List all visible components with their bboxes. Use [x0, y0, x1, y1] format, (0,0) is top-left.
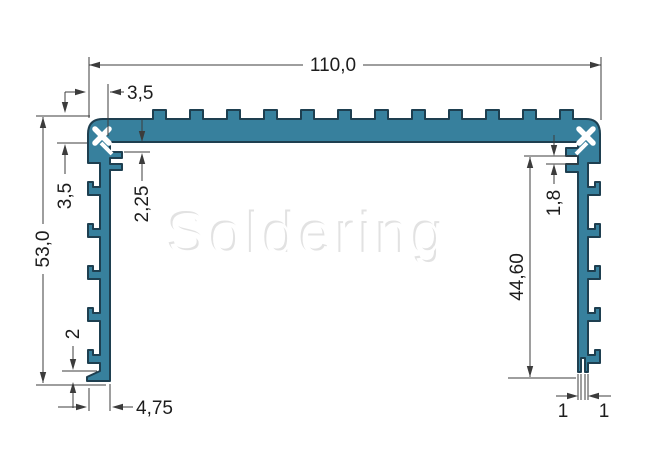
arrow [40, 117, 46, 128]
arrow [112, 404, 123, 410]
dim-left-flange: 3,5 [55, 143, 87, 209]
dim-label-right-slot: 1,8 [544, 190, 565, 216]
arrow [567, 393, 578, 399]
arrow [527, 157, 533, 168]
arrow [62, 102, 68, 113]
arrow [588, 393, 599, 399]
watermark-text: Soldering [168, 202, 449, 267]
dim-inner-depth: 44,60 [507, 156, 578, 378]
arrow [110, 89, 121, 95]
dim-label-inner-depth: 44,60 [507, 253, 528, 301]
dim-foot-height: 2 [62, 329, 97, 408]
dim-label-foot-height: 2 [63, 329, 84, 340]
arrow [70, 382, 76, 393]
dim-label-left-flange: 3,5 [55, 183, 76, 209]
arrow [75, 89, 86, 95]
dim-label-overall-width: 110,0 [310, 55, 356, 76]
dim-jog-leader [62, 89, 86, 113]
profile-drawing-canvas: Soldering Soldering 110,0 3,5 [0, 0, 646, 467]
dim-bottom-legs: 1 1 [556, 374, 611, 422]
dim-label-right-leg: 1 [599, 401, 610, 422]
arrow [89, 62, 100, 68]
arrow [590, 62, 601, 68]
dim-label-wall-width: 4,75 [136, 398, 173, 419]
arrow [40, 372, 46, 383]
arrow [76, 404, 87, 410]
watermark: Soldering Soldering [166, 200, 449, 267]
dim-label-overall-height: 53,0 [33, 231, 54, 268]
dim-wall-width: 4,75 [58, 384, 173, 419]
dim-label-left-slot: 2,25 [132, 186, 153, 223]
arrow [62, 144, 68, 155]
drawing-page: Soldering Soldering 110,0 3,5 [0, 0, 646, 467]
dim-label-left-leg: 1 [558, 401, 569, 422]
arrow [551, 145, 557, 156]
arrow [527, 366, 533, 377]
arrow [551, 164, 557, 175]
dim-label-top-offset: 3,5 [127, 83, 153, 104]
arrow [70, 359, 76, 370]
arrow [139, 153, 145, 164]
